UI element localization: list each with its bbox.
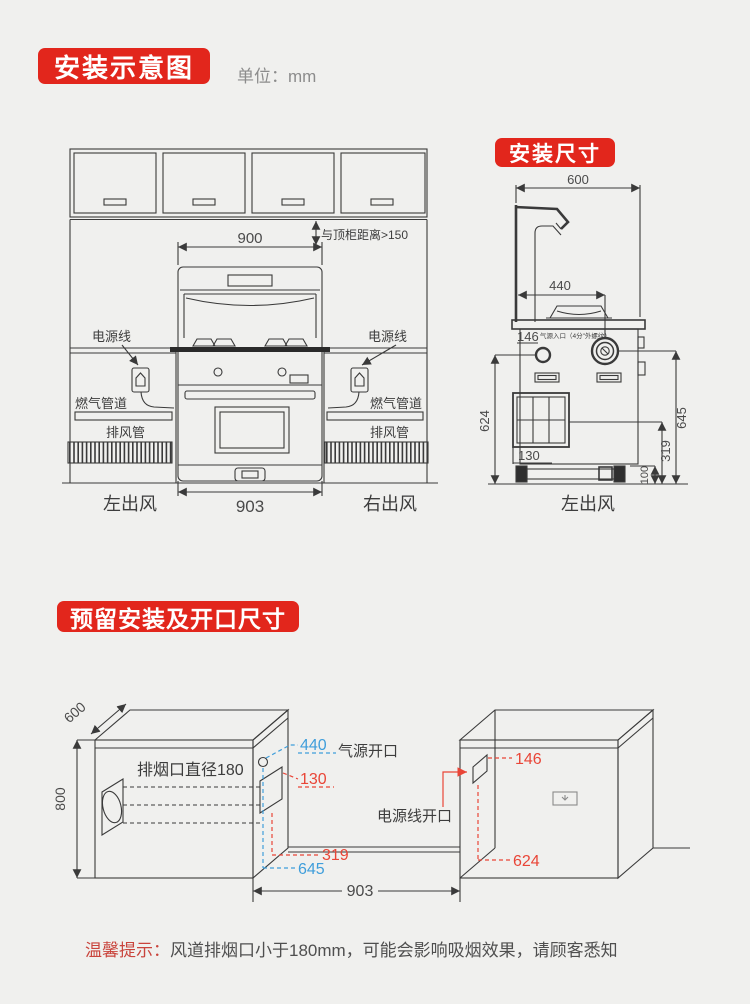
gas-inlet-icon bbox=[517, 343, 550, 362]
exhaust-left-label: 排风管 bbox=[106, 425, 145, 440]
exhaust-duct-left bbox=[68, 442, 172, 463]
power-outlet-left bbox=[122, 345, 174, 408]
dim-440-label: 440 bbox=[300, 737, 327, 754]
oven-window bbox=[215, 407, 289, 453]
indicator-light-icon bbox=[278, 368, 286, 376]
title-badge-reserved-opening: 预留安装及开口尺寸 bbox=[57, 601, 299, 632]
dim-130-label: 130 bbox=[518, 448, 540, 463]
front-view-diagram: 900 与顶柜距离>150 电源线 电源线 燃气管道 燃气管道 排风管 排风管 … bbox=[50, 140, 450, 525]
gas-pipe-left-label: 燃气管道 bbox=[75, 396, 127, 411]
vent-grilles bbox=[535, 373, 621, 382]
exhaust-duct-right bbox=[325, 442, 428, 463]
power-cord-right-label: 电源线 bbox=[368, 329, 407, 344]
dim-100-label: 100 bbox=[639, 466, 651, 484]
left-cabinet-box bbox=[95, 710, 288, 878]
dim-645-label: 645 bbox=[674, 407, 689, 429]
dim-146-label: 146 bbox=[515, 751, 542, 768]
gas-pipe-left bbox=[75, 412, 172, 420]
tip-label: 温馨提示： bbox=[85, 941, 170, 960]
drawer-handle bbox=[235, 468, 265, 481]
gas-opening-hole bbox=[259, 758, 268, 767]
power-cord-left-label: 电源线 bbox=[92, 329, 131, 344]
gas-pipe-right bbox=[327, 412, 423, 420]
right-cabinet-box bbox=[460, 710, 690, 878]
base-and-feet bbox=[488, 466, 688, 484]
dim-146-label: 146 bbox=[517, 329, 539, 344]
dim-800-label: 800 bbox=[52, 787, 68, 811]
dim-903-label: 903 bbox=[236, 497, 264, 516]
burner-profile bbox=[546, 306, 612, 318]
gas-opening-label: 气源开口 bbox=[338, 743, 398, 760]
dim-624-label: 624 bbox=[513, 853, 540, 870]
oven-handle bbox=[185, 391, 315, 399]
dim-900-label: 900 bbox=[237, 230, 262, 247]
integrated-stove bbox=[170, 267, 330, 481]
floor-lines bbox=[288, 847, 460, 852]
unit-label: 单位：mm bbox=[237, 62, 316, 87]
indicator-light-icon bbox=[214, 368, 222, 376]
side-view-diagram: 600 440 146 气源入口（4分"外螺纹） 624 645 319 100… bbox=[480, 165, 750, 520]
hood-display bbox=[228, 275, 272, 286]
dim-600 bbox=[91, 704, 126, 734]
smoke-outlet-hole bbox=[99, 779, 124, 835]
dim-440-label: 440 bbox=[549, 278, 571, 293]
power-opening-label: 电源线开口 bbox=[377, 808, 452, 825]
power-opening-hole bbox=[473, 755, 487, 783]
dim-645-label: 645 bbox=[298, 861, 325, 878]
duct-opening bbox=[259, 758, 283, 814]
dim-903-label: 903 bbox=[347, 883, 374, 900]
dim-600-label: 600 bbox=[61, 698, 89, 726]
air-out-label: 左出风 bbox=[561, 494, 615, 514]
air-out-left-label: 左出风 bbox=[103, 494, 157, 514]
dim-319-label: 319 bbox=[658, 440, 673, 462]
upper-cabinets bbox=[70, 149, 427, 217]
page: 安装示意图 单位：mm bbox=[0, 0, 750, 1004]
gas-pipe-right-label: 燃气管道 bbox=[370, 396, 422, 411]
dim-130-label: 130 bbox=[300, 771, 327, 788]
hood-profile bbox=[515, 205, 568, 322]
duct-path bbox=[123, 787, 260, 823]
dim-319-label: 319 bbox=[322, 847, 349, 864]
dim-600-label: 600 bbox=[567, 172, 589, 187]
knob-icon bbox=[592, 338, 618, 364]
burners bbox=[193, 339, 307, 346]
exhaust-right-label: 排风管 bbox=[370, 425, 409, 440]
dim-624-label: 624 bbox=[480, 410, 492, 432]
power-opening-arrow bbox=[443, 772, 467, 807]
title-badge-install-diagram: 安装示意图 bbox=[38, 48, 210, 84]
top-gap-note: 与顶柜距离>150 bbox=[321, 227, 408, 242]
control-display bbox=[290, 375, 308, 383]
cooktop-band bbox=[170, 347, 330, 352]
smoke-outlet-label: 排烟口直径180 bbox=[137, 761, 244, 779]
title-badge-install-size: 安装尺寸 bbox=[495, 138, 615, 167]
dim-800 bbox=[77, 740, 95, 878]
opening-view-diagram: 600 800 排烟口直径180 440 气源开口 130 319 645 90… bbox=[50, 695, 710, 910]
air-out-right-label: 右出风 bbox=[363, 494, 417, 514]
air-outlet-grid bbox=[513, 393, 569, 447]
tip-text: 风道排烟口小于180mm，可能会影响吸烟效果，请顾客悉知 bbox=[170, 941, 618, 960]
footer-tip: 温馨提示：风道排烟口小于180mm，可能会影响吸烟效果，请顾客悉知 bbox=[85, 936, 618, 961]
gas-inlet-note: 气源入口（4分"外螺纹） bbox=[540, 331, 611, 340]
